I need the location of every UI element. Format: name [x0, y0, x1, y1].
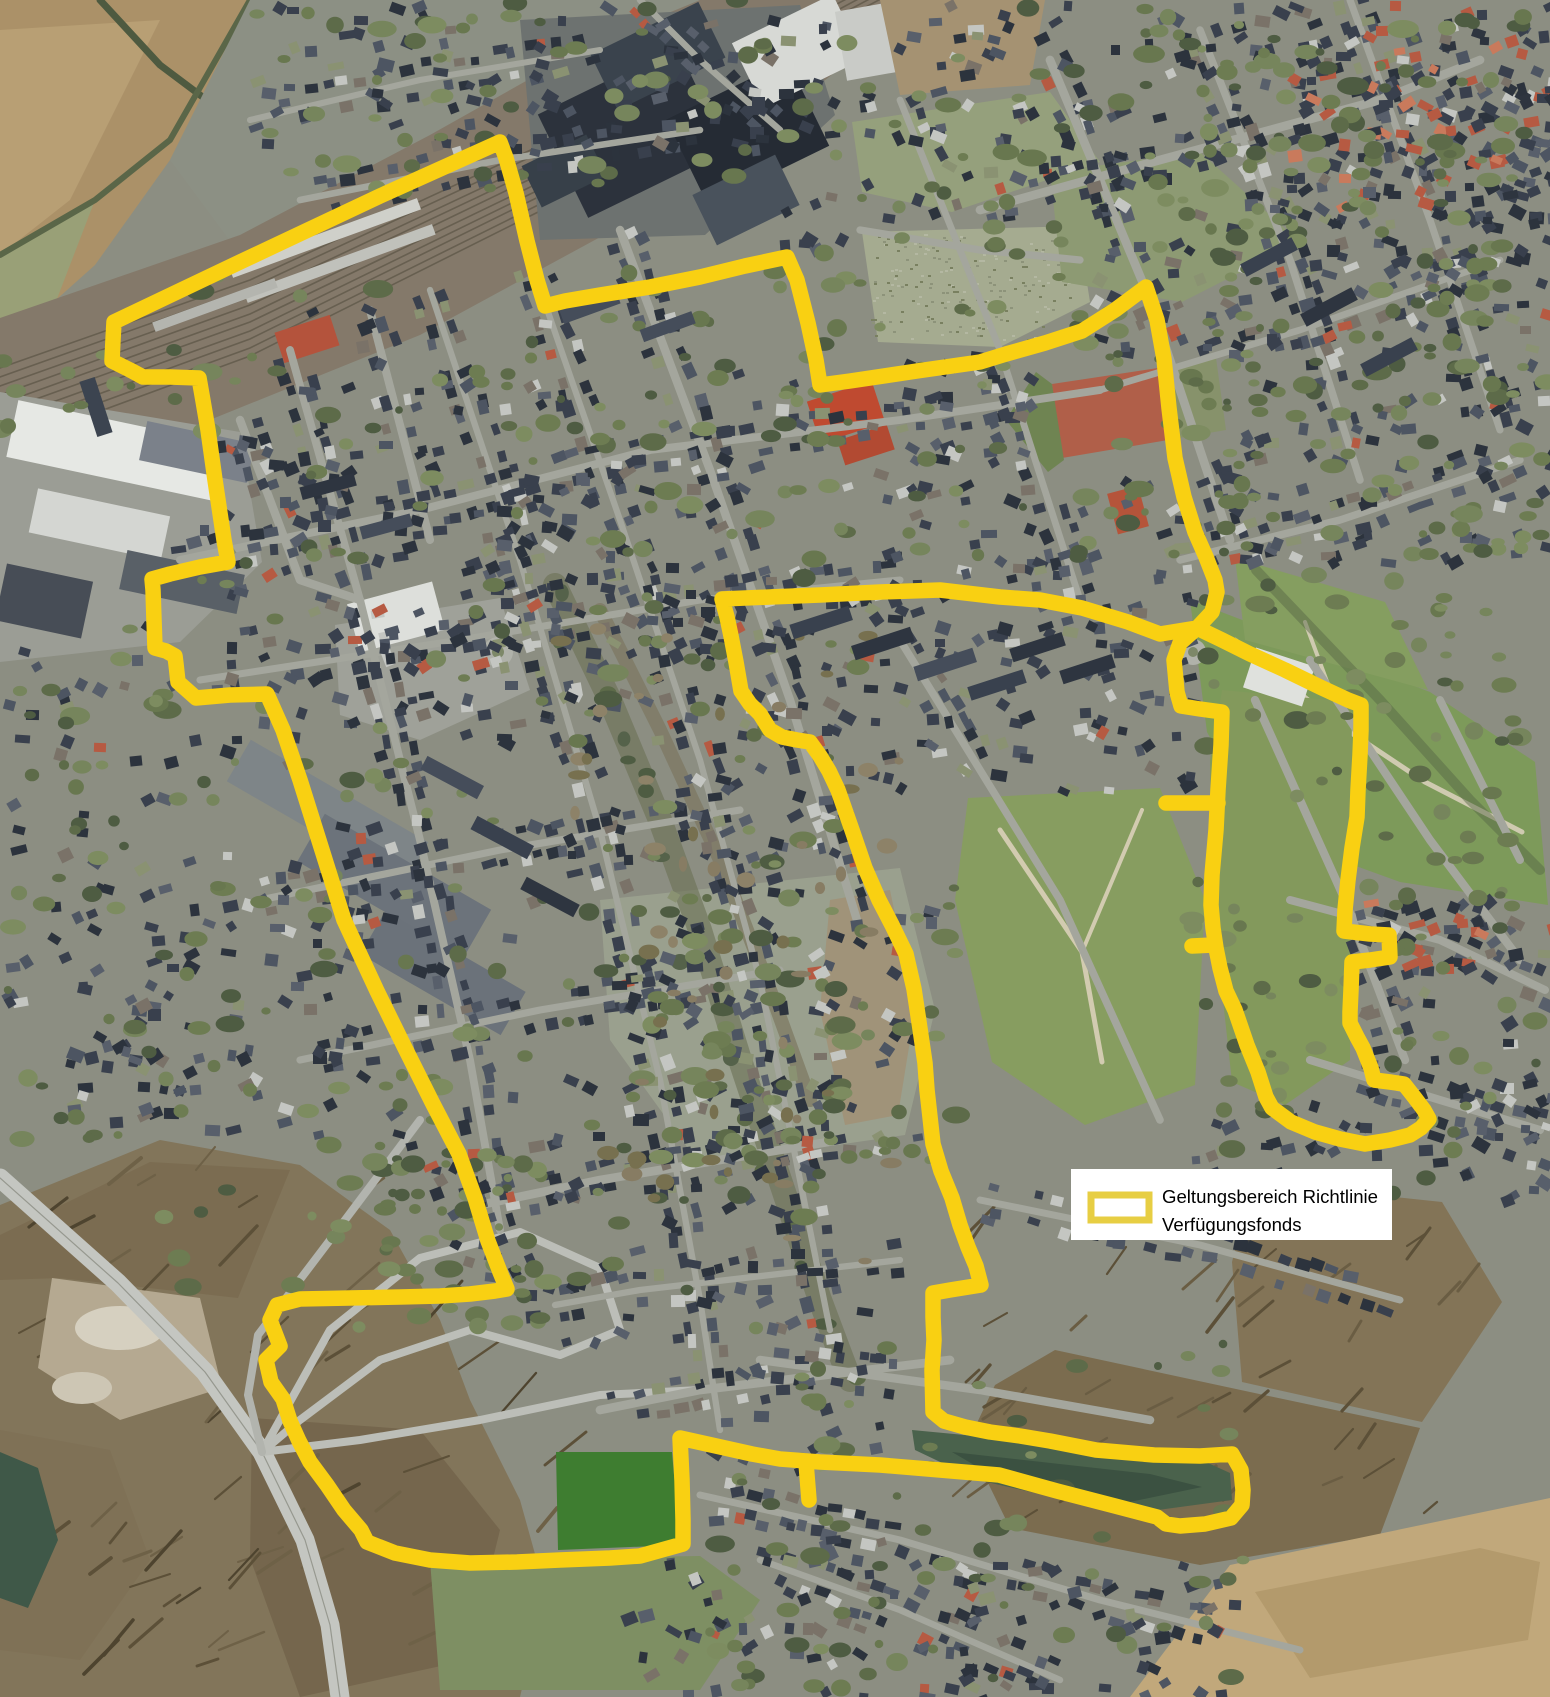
- svg-text:Geltungsbereich Richtlinie: Geltungsbereich Richtlinie: [1162, 1186, 1378, 1207]
- svg-text:Verfügungsfonds: Verfügungsfonds: [1162, 1214, 1302, 1235]
